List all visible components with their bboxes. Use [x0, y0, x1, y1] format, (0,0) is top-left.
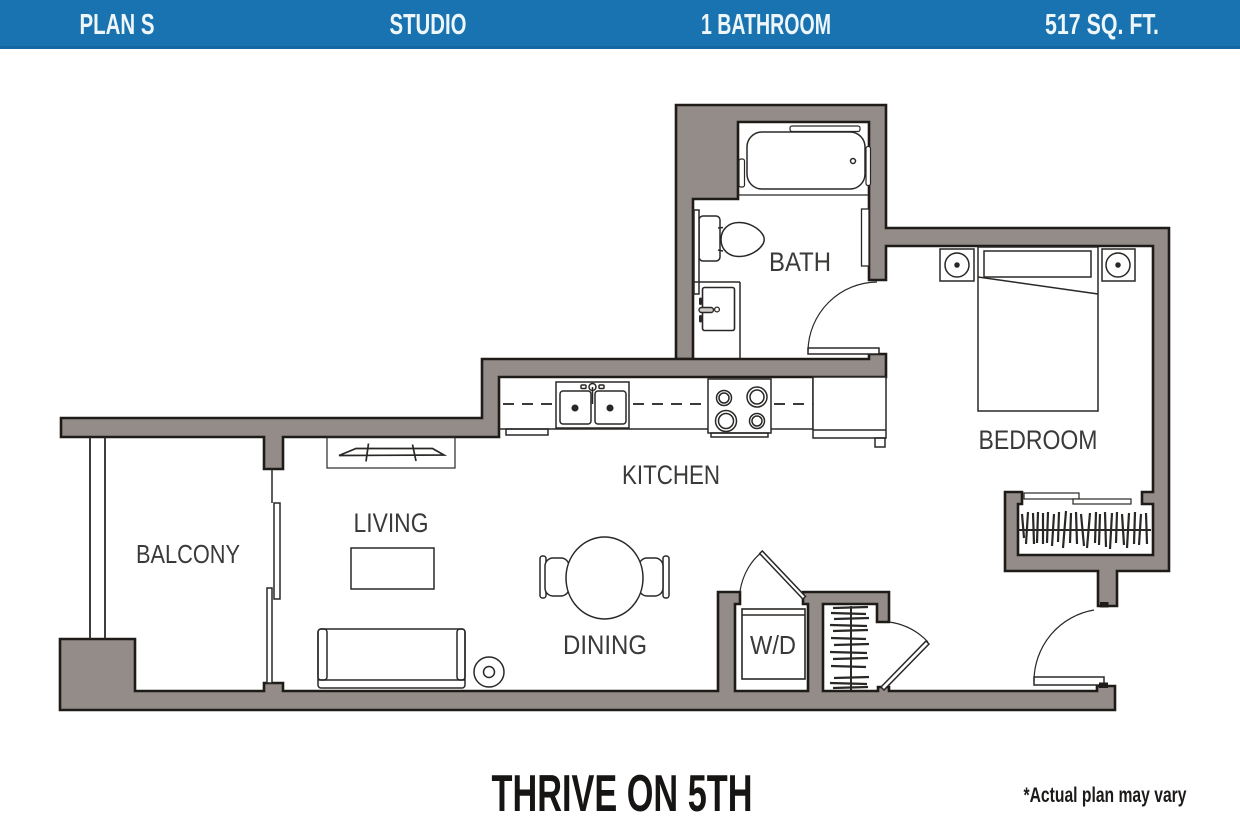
svg-text:W/D: W/D	[750, 630, 796, 660]
svg-text:1 BATHROOM: 1 BATHROOM	[701, 9, 831, 41]
svg-text:BATH: BATH	[769, 247, 831, 277]
svg-text:THRIVE ON 5TH: THRIVE ON 5TH	[492, 765, 753, 823]
svg-text:LIVING: LIVING	[354, 508, 429, 538]
svg-text:DINING: DINING	[563, 630, 647, 660]
svg-text:STUDIO: STUDIO	[390, 9, 467, 41]
svg-text:BEDROOM: BEDROOM	[979, 425, 1098, 455]
svg-text:517 SQ. FT.: 517 SQ. FT.	[1045, 9, 1159, 41]
svg-text:PLAN S: PLAN S	[80, 9, 155, 41]
svg-text:*Actual plan may vary: *Actual plan may vary	[1024, 783, 1187, 807]
svg-text:KITCHEN: KITCHEN	[622, 460, 720, 490]
svg-text:BALCONY: BALCONY	[136, 539, 240, 569]
